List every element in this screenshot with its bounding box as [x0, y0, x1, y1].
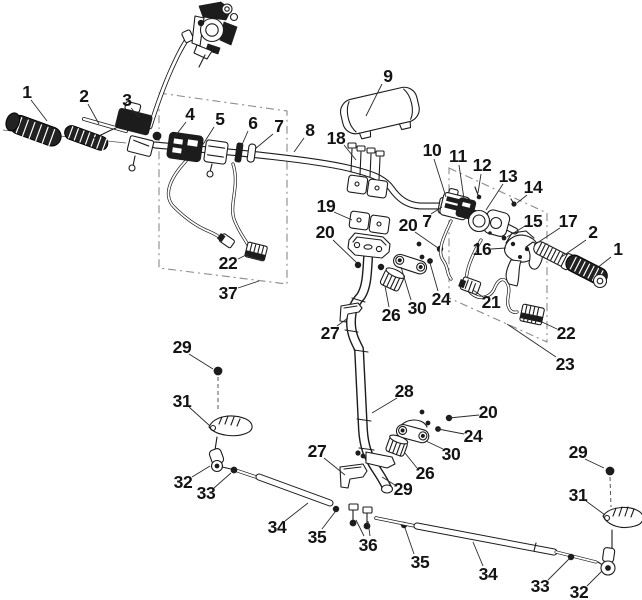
callout-leader-line — [507, 324, 556, 357]
riser-clamps — [347, 175, 390, 234]
callout-label-20-21: 20 — [316, 222, 335, 242]
callout-label-1-18: 1 — [613, 239, 623, 259]
callout-label-34-37: 34 — [268, 517, 287, 537]
callout-leader-line — [192, 466, 210, 477]
callout-leader-line — [585, 459, 604, 468]
callout-label-2-1: 2 — [79, 86, 89, 106]
callout-label-29-51: 29 — [394, 479, 413, 499]
left-grip — [3, 111, 64, 149]
callout-label-4-3: 4 — [185, 104, 195, 124]
callout-label-8-7: 8 — [305, 120, 315, 140]
callout-label-18-9: 18 — [327, 128, 346, 148]
left-tie-rod-assembly — [208, 367, 339, 512]
throttle-lever-assembly — [505, 231, 543, 286]
nut-33-right — [568, 554, 574, 560]
callout-leader-line — [426, 441, 443, 449]
callout-leader-line — [238, 281, 259, 288]
callout-layer: 1234567891810111213141517211619202072430… — [22, 66, 623, 600]
callout-leader-line — [31, 100, 47, 121]
callout-label-36-39: 36 — [359, 535, 378, 555]
brake-master-cylinder — [94, 100, 161, 171]
callout-leader-line — [438, 429, 464, 434]
callout-label-21-28: 21 — [482, 292, 501, 312]
callout-label-7-6: 7 — [274, 116, 283, 136]
bar-ring-7 — [247, 144, 256, 163]
switch-block-4 — [166, 132, 203, 162]
callout-label-26-50: 26 — [416, 463, 435, 483]
callout-label-17-16: 17 — [559, 211, 578, 231]
callout-label-23-30: 23 — [556, 354, 575, 374]
callout-label-34-41: 34 — [479, 564, 498, 584]
harness-plug — [217, 232, 235, 249]
callout-label-2-17: 2 — [588, 222, 598, 242]
callout-leader-line — [241, 131, 248, 147]
callout-label-1-0: 1 — [22, 82, 32, 102]
callout-leader-line — [405, 528, 414, 554]
callout-leader-line — [459, 165, 464, 199]
callout-leader-line — [189, 354, 213, 369]
connector-22-left — [245, 242, 268, 261]
left-wiring-harness — [168, 161, 267, 261]
callout-leader-line — [334, 212, 352, 220]
callout-leader-line — [285, 503, 308, 521]
nut-29-right — [606, 467, 614, 475]
callout-label-28-46: 28 — [395, 381, 414, 401]
callout-label-24-48: 24 — [464, 426, 483, 446]
callout-label-31-45: 31 — [569, 485, 588, 505]
callout-label-35-38: 35 — [308, 527, 327, 547]
callout-label-29-33: 29 — [173, 337, 192, 357]
callout-leader-line — [255, 134, 273, 149]
callout-leader-line — [401, 267, 411, 300]
callout-leader-line — [356, 520, 364, 536]
callout-label-30-49: 30 — [442, 444, 461, 464]
callout-leader-line — [294, 138, 304, 152]
callout-label-37-32: 37 — [219, 283, 238, 303]
callout-leader-line — [372, 398, 397, 413]
callout-label-16-19: 16 — [473, 239, 492, 259]
callout-label-10-10: 10 — [423, 140, 442, 160]
parts-diagram-page: 1234567891810111213141517211619202072430… — [0, 0, 642, 600]
callout-label-22-29: 22 — [557, 323, 576, 343]
nut-35-left — [333, 506, 339, 512]
callout-leader-line — [385, 286, 389, 307]
callout-label-29-44: 29 — [569, 442, 588, 462]
callout-label-31-34: 31 — [173, 391, 192, 411]
callout-label-5-4: 5 — [215, 109, 225, 129]
bar-clamp-5 — [204, 140, 229, 165]
callout-leader-line — [434, 159, 446, 197]
callout-label-15-15: 15 — [524, 211, 543, 231]
callout-label-12-12: 12 — [473, 155, 492, 175]
callout-label-27-27: 27 — [321, 323, 340, 343]
callout-label-20-47: 20 — [479, 402, 498, 422]
callout-leader-line — [587, 571, 602, 586]
callout-leader-line — [548, 559, 569, 580]
callout-label-32-35: 32 — [174, 472, 193, 492]
callout-label-35-40: 35 — [411, 552, 430, 572]
callout-label-6-5: 6 — [248, 113, 258, 133]
brake-caliper-assembly — [192, 2, 238, 67]
callout-leader-line — [542, 322, 557, 329]
callout-label-3-2: 3 — [122, 90, 132, 110]
callout-label-32-43: 32 — [570, 582, 589, 600]
callout-label-13-13: 13 — [499, 166, 518, 186]
connector-22-right — [520, 304, 545, 325]
callout-leader-line — [214, 473, 231, 488]
steering-arm-31-right — [603, 507, 642, 527]
handlebar-pad — [338, 85, 423, 142]
callout-label-33-36: 33 — [197, 483, 216, 503]
callout-label-9-8: 9 — [383, 66, 393, 86]
ball-joint-32-left — [208, 447, 231, 471]
callout-leader-line — [189, 407, 210, 426]
callout-leader-line — [430, 263, 438, 291]
callout-label-19-20: 19 — [317, 196, 336, 216]
callout-label-30-25: 30 — [408, 298, 427, 318]
connector-21 — [458, 276, 481, 295]
callout-leader-line — [478, 174, 481, 193]
callout-leader-line — [586, 501, 605, 515]
callout-label-26-26: 26 — [382, 305, 401, 325]
callout-label-7-23: 7 — [422, 211, 431, 231]
callout-leader-line — [486, 184, 503, 210]
callout-label-24-24: 24 — [432, 289, 451, 309]
callout-label-22-31: 22 — [219, 253, 238, 273]
callout-label-11-11: 11 — [449, 146, 467, 166]
callout-leader-line — [473, 542, 483, 566]
callout-leader-line — [449, 415, 479, 418]
right-grip — [563, 252, 610, 287]
handlebar-steering-exploded-diagram: 1234567891810111213141517211619202072430… — [0, 0, 642, 600]
nut-33-left — [231, 467, 237, 473]
nut-29-left — [214, 367, 222, 375]
ball-joint-32-right — [598, 547, 615, 575]
callout-leader-line — [491, 248, 506, 249]
callout-label-14-14: 14 — [524, 177, 543, 197]
callout-label-27-52: 27 — [308, 441, 327, 461]
callout-label-33-42: 33 — [531, 576, 550, 596]
steering-arm-31-left — [209, 416, 252, 436]
callout-label-20-22: 20 — [399, 215, 418, 235]
